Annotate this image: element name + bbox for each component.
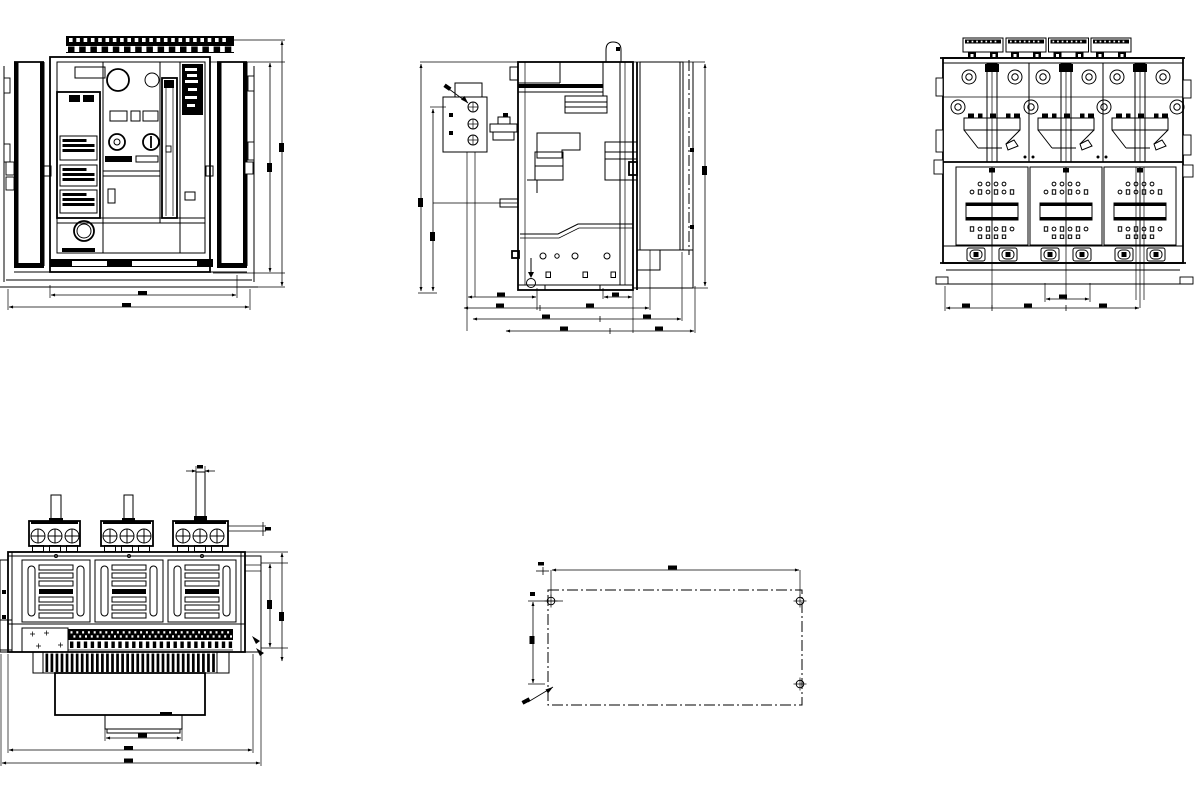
front-terminal-tabs [68,47,231,53]
vent-side-slot [28,566,35,616]
vent-slat [185,605,219,610]
terminal-dot [1010,41,1012,43]
grid-hole [978,235,981,238]
vent-slat [112,589,146,594]
comb-fin [187,654,190,673]
grid-hole [1044,190,1048,194]
mounting-bolt-head [1122,252,1127,257]
comb-fin [56,654,59,673]
arc-chute-side [1038,130,1052,148]
strip-square [222,642,225,649]
terminal-leg-notch [1056,54,1059,57]
label-text-row [63,198,95,201]
strip-square [160,642,163,649]
pole-bolt [1082,70,1096,84]
comb-fin [136,654,139,673]
grid-hole [1076,235,1079,238]
strip-dot [102,635,104,637]
leader-label [522,697,531,704]
terminal-dot [972,41,974,43]
conductor-stems [49,465,215,523]
strip-dot [85,635,87,637]
strip-dot [140,631,142,633]
arc-chute-side [1154,130,1168,144]
comb-fin [61,654,64,673]
strip-square [105,642,108,649]
dim-label [538,562,544,566]
comb-fin [167,654,170,673]
strip-dot [143,635,145,637]
terminal-bolt [137,529,151,543]
vent-slat [39,589,73,594]
vent-slat [39,573,73,578]
mounting-bolt-head [1048,252,1053,257]
terminal-slot [142,38,146,42]
strip-dot [207,635,209,637]
lifting-hook [606,42,621,62]
arc-chute-side [1080,130,1094,144]
vent-slat [112,605,146,610]
strip-dot [224,635,226,637]
grid-hole [1068,227,1072,231]
terminal-tab [135,47,142,53]
dim-label [496,304,504,308]
grid-hole [1002,190,1006,194]
comb-fin [46,654,49,673]
arc-chute-tooth [1154,114,1159,119]
comb-fin [192,654,195,673]
conductor-cap [1059,64,1073,72]
pole-bolt [1036,70,1050,84]
pole-bolt [1008,70,1022,84]
grid-hole [978,182,982,186]
strip-dot [88,631,90,633]
grid-hole [1068,190,1071,194]
strip-dot [91,635,93,637]
arc-chute-tooth [1126,114,1131,119]
strip-dot [175,631,177,633]
terminal-dot [985,41,987,43]
drawing-sheet [0,0,1200,800]
grid-hole [1150,227,1153,231]
terminal-bolt [193,529,207,543]
side-dimensions [418,64,708,334]
strip-square [132,642,135,649]
strip-dot [178,635,180,637]
strip-square [194,642,197,649]
indicator-open [69,95,80,102]
grid-hole [1150,190,1154,194]
dim-label [962,304,970,308]
comb-fin [202,654,205,673]
grid-hole [1158,190,1161,194]
comb-fin [157,654,160,673]
engineering-drawing-canvas [0,0,1200,800]
strip-square [167,642,170,649]
terminal-dot [995,41,997,43]
vent-side-slot [223,566,230,616]
grid-hole [1052,227,1056,231]
strip-dot [216,631,218,633]
strip-dot [181,631,183,633]
vent-slat [185,613,219,618]
terminal-tab [180,47,187,53]
vent-slat [39,565,73,570]
strip-square [208,642,211,649]
grid-hole [1076,190,1080,194]
terminal-dot [1024,41,1026,43]
dim-label [643,315,651,319]
grid-hole [1068,235,1071,238]
arc-chute-tooth [1088,114,1094,119]
cluster-edge [103,521,151,524]
strip-dot [187,631,189,633]
vent-slat [185,565,219,570]
vent-slat [39,597,73,602]
vent-slat [185,589,219,594]
grid-hole [994,227,998,231]
front-right-rail [206,62,254,282]
terminal-dot [1066,41,1068,43]
comb-fin [141,654,144,673]
terminal-bolt [103,529,117,543]
grid-hole [978,190,981,194]
comb-fin [182,654,185,673]
terminal-slot [91,38,95,42]
grid-hole [986,182,990,186]
terminal-tab [79,47,86,53]
terminal-leg-notch [1036,54,1039,57]
terminal-bolt [31,529,45,543]
strip-dot [163,631,165,633]
comb-fin [96,654,99,673]
terminal-dot [1071,41,1073,43]
front-nameplate-column [57,92,100,241]
pole-bolt [1156,70,1170,84]
vent-slat [112,581,146,586]
comb-fin [177,654,180,673]
comb-fin [131,654,134,673]
arc-chute-side [1112,130,1126,148]
terminal-dot [1100,41,1102,43]
strip-dot [137,635,139,637]
strip-dot [204,631,206,633]
comb-fin [66,654,69,673]
terminal-dot [1053,41,1055,43]
terminal-dot [1062,41,1064,43]
grid-hole [1002,227,1005,231]
terminal-slot [215,38,219,42]
strip-dot [120,635,122,637]
arc-chute-side [1006,130,1020,144]
dim-label [265,527,271,531]
grid-hole [1060,227,1063,231]
dim-label [124,746,133,750]
rear-view [934,38,1193,311]
charging-handle-slot [162,78,177,218]
strip-dot [189,635,191,637]
strip-square [111,642,114,649]
grid-hole [1010,190,1013,194]
strip-dot [160,635,162,637]
comb-fin [152,654,155,673]
strip-dot [149,635,151,637]
dim-label [279,143,284,152]
mounting-bolt-head [1080,252,1085,257]
vent-slat [112,573,146,578]
comb-fin [81,654,84,673]
grid-hole [1060,190,1064,194]
strip-square [215,642,218,649]
grid-hole [1052,235,1055,238]
dim-label [530,636,535,644]
strip-dot [195,635,197,637]
strip-dot [221,631,223,633]
strip-dot [192,631,194,633]
label-text-row [63,149,95,152]
terminal-tab [102,47,109,53]
terminal-slot [157,38,161,42]
dim-label [124,759,133,763]
strip-dot [155,635,157,637]
top-left-bracket [0,560,12,652]
arc-chute-tooth [1052,114,1057,119]
indicator-closed [83,95,94,102]
pole-bolt [962,70,976,84]
strip-dot [134,631,136,633]
grid-hole [1052,190,1055,194]
grid-hole [1126,227,1130,231]
conductor-cap [985,64,999,72]
strip-square [70,642,73,649]
grid-hole [970,227,973,231]
vent-slat [185,573,219,578]
comb-fins [46,654,215,673]
terminal-slot [186,38,190,42]
terminal-bolt [120,529,134,543]
strip-dot [169,631,171,633]
terminal-slot [127,38,131,42]
strip-dot [79,635,81,637]
strip-dot [82,631,84,633]
dim-label [530,592,535,596]
plan-dimensions [522,562,800,705]
dim-label [612,293,619,297]
rear-terminal-groups [963,38,1131,59]
cluster-edge [31,521,78,524]
leader-arrowhead [546,687,554,694]
strip-dot [117,631,119,633]
vent-slat [39,605,73,610]
dim-label [1059,295,1067,299]
terminal-tab [146,47,153,53]
vent-slat [112,565,146,570]
terminal-leg-notch [1099,54,1102,57]
comb-fin [162,654,165,673]
terminal-leg-notch [1014,54,1017,57]
strip-square [180,642,183,649]
terminal-slot [208,38,212,42]
grid-hole [1150,182,1154,186]
comb-fin [101,654,104,673]
vent-side-slot [150,566,157,616]
strip-dot [152,631,154,633]
strip-dot [198,631,200,633]
grid-hole [1002,182,1006,186]
terminal-dot [981,41,983,43]
terminal-dot [1076,41,1078,43]
grid-hole [1076,227,1079,231]
dim-label [668,566,677,570]
terminal-dot [1038,41,1040,43]
terminal-bolt [65,529,79,543]
dim-label [138,291,147,295]
side-internal-mechanism [512,62,637,290]
arc-chute-tooth [1014,114,1020,119]
arc-chute-tooth [1042,114,1048,119]
terminal-slot [222,38,226,42]
terminal-clusters [29,521,228,552]
label-text-row [63,203,95,206]
grid-hole [1044,227,1047,231]
terminal-leg-notch [1121,54,1124,57]
dim-label [279,612,284,621]
label-text-row [63,168,87,171]
terminal-leg-notch [993,54,996,57]
strip-squares [70,642,232,649]
grid-hole [1068,182,1072,186]
strip-dot [158,631,160,633]
cutout-outline [548,590,802,705]
dim-label [430,232,435,241]
secondary-terminal-block-side [443,83,517,152]
strip-square [77,642,80,649]
terminal-leg-notch [1078,54,1081,57]
terminal-tab [169,47,176,53]
side-view [418,42,708,334]
terminal-slot [106,38,110,42]
strip-square [187,642,190,649]
strip-dot [166,635,168,637]
strip-dot [126,635,128,637]
comb-fin [197,654,200,673]
terminal-slot [171,38,175,42]
dim-label [1024,304,1032,308]
secondary-terminal-strip-top [68,629,233,650]
strip-square [139,642,142,649]
dim-label [586,304,594,308]
grid-hole [970,190,974,194]
arc-chute-vents [22,555,236,623]
arc-chute-tooth [1116,114,1122,119]
terminal-tab [225,47,232,53]
charging-handle-hole [107,69,129,91]
comb-fin [76,654,79,673]
grid-hole [1002,235,1005,238]
terminal-slot [113,38,117,42]
grid-hole [1010,227,1014,231]
strip-dot [213,635,215,637]
grid-hole [1076,182,1080,186]
terminal-slot [69,38,73,42]
terminal-dot [990,41,992,43]
comb-fin [207,654,210,673]
comb-fin [172,654,175,673]
grid-hole [986,235,989,238]
arc-chute-tooth [1064,114,1070,119]
rear-dimensions [945,167,1144,311]
dim-label [1099,304,1107,308]
dim-label [418,198,423,207]
front-panel-projection [55,673,205,733]
strip-square [84,642,87,649]
strip-square [91,642,94,649]
grid-hole [1084,227,1088,231]
mounting-plan-view [522,562,807,705]
strip-dot [146,631,148,633]
terminal-tab [158,47,165,53]
dim-label [267,163,272,172]
strip-dot [108,635,110,637]
dim-label [197,465,203,469]
rear-pole-details [962,64,1170,162]
arc-chute-tooth [1080,114,1085,119]
terminal-dot [1028,41,1030,43]
instruction-label [182,64,203,115]
strip-dot [114,635,116,637]
terminal-slot [164,38,168,42]
label-text-row [63,173,95,176]
strip-dot [210,631,212,633]
grid-hole [986,227,989,231]
strip-dot [201,635,203,637]
strip-square [229,642,232,649]
terminal-dot [976,41,978,43]
terminal-dot [1095,41,1097,43]
terminal-bolt [210,529,224,543]
arc-chute-tooth [990,114,996,119]
cluster-edge [175,521,226,524]
aux-terminal-plate [22,628,68,652]
grid-hole [1084,190,1087,194]
terminal-dot [1080,41,1082,43]
comb-fin [86,654,89,673]
strip-square [201,642,204,649]
dim-label [542,315,550,319]
strip-dot [76,631,78,633]
strip-square [146,642,149,649]
terminal-dot [1104,41,1106,43]
grid-hole [1158,227,1162,231]
terminal-tab [90,47,97,53]
rear-body-outline [943,58,1183,263]
arc-chute-tooth [968,114,974,119]
front-view [0,36,285,310]
label-text-row [63,144,95,147]
strip-dot [129,631,131,633]
grid-hole [1118,190,1122,194]
terminal-dot [1118,41,1120,43]
strip-dot [218,635,220,637]
setting-dial [109,134,125,150]
grid-hole [1150,235,1153,238]
trip-unit-controls [105,111,195,203]
dim-label [655,327,663,331]
terminal-dot [967,41,969,43]
dim-label [560,327,568,331]
pole-bolt [1110,70,1124,84]
mounting-bolt-head [974,252,979,257]
